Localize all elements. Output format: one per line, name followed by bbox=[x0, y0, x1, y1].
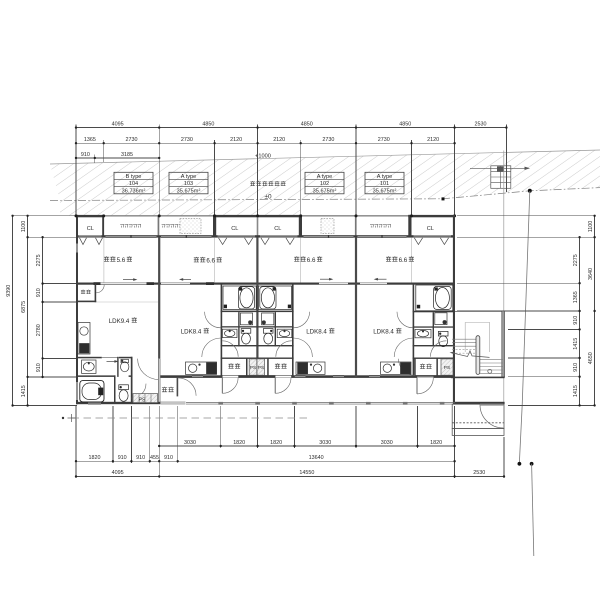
svg-text:2120: 2120 bbox=[273, 137, 285, 143]
svg-text:LDK8.4: LDK8.4 bbox=[181, 329, 202, 336]
svg-text:4095: 4095 bbox=[112, 121, 124, 127]
svg-text:2530: 2530 bbox=[473, 470, 485, 476]
svg-text:910: 910 bbox=[81, 152, 90, 158]
svg-text:±0: ±0 bbox=[264, 194, 272, 201]
svg-text:LDK8.4: LDK8.4 bbox=[306, 329, 327, 336]
svg-text:910: 910 bbox=[136, 455, 145, 461]
svg-text:104: 104 bbox=[129, 181, 138, 187]
svg-text:1415: 1415 bbox=[21, 385, 27, 397]
svg-text:1820: 1820 bbox=[270, 440, 282, 446]
svg-text:5.6: 5.6 bbox=[117, 257, 126, 264]
svg-text:4850: 4850 bbox=[301, 121, 313, 127]
svg-text:3185: 3185 bbox=[121, 152, 133, 158]
svg-text:1100: 1100 bbox=[21, 221, 27, 233]
svg-text:1365: 1365 bbox=[84, 137, 96, 143]
svg-text:6.6: 6.6 bbox=[307, 257, 316, 264]
svg-text:A type: A type bbox=[317, 174, 333, 180]
svg-text:1820: 1820 bbox=[89, 455, 101, 461]
svg-text:6.6: 6.6 bbox=[399, 257, 408, 264]
svg-text:1415: 1415 bbox=[573, 338, 579, 350]
svg-text:102: 102 bbox=[320, 181, 329, 187]
svg-text:2275: 2275 bbox=[36, 254, 42, 266]
svg-text:13640: 13640 bbox=[309, 455, 324, 461]
svg-text:B type: B type bbox=[126, 174, 142, 180]
svg-text:LDK8.4: LDK8.4 bbox=[373, 329, 394, 336]
svg-text:4095: 4095 bbox=[112, 470, 124, 476]
svg-text:3640: 3640 bbox=[588, 268, 594, 280]
svg-text:CL: CL bbox=[87, 226, 94, 232]
svg-text:36.736m²: 36.736m² bbox=[122, 188, 146, 194]
svg-text:4850: 4850 bbox=[399, 121, 411, 127]
svg-text:6875: 6875 bbox=[21, 301, 27, 313]
svg-text:1820: 1820 bbox=[233, 440, 245, 446]
svg-text:3030: 3030 bbox=[381, 440, 393, 446]
svg-text:910: 910 bbox=[573, 363, 579, 372]
svg-text:PS: PS bbox=[250, 365, 256, 371]
svg-text:2275: 2275 bbox=[573, 254, 579, 266]
svg-text:CL: CL bbox=[274, 226, 281, 232]
svg-text:1100: 1100 bbox=[588, 221, 594, 233]
svg-text:2120: 2120 bbox=[427, 137, 439, 143]
svg-text:4650: 4650 bbox=[588, 352, 594, 364]
svg-text:A type: A type bbox=[377, 174, 393, 180]
svg-text:910: 910 bbox=[164, 455, 173, 461]
svg-text:4850: 4850 bbox=[202, 121, 214, 127]
svg-text:CL: CL bbox=[427, 226, 434, 232]
svg-text:LDK9.4: LDK9.4 bbox=[109, 318, 130, 325]
svg-text:910: 910 bbox=[118, 455, 127, 461]
svg-text:CL: CL bbox=[231, 226, 238, 232]
svg-text:3030: 3030 bbox=[319, 440, 331, 446]
svg-text:2730: 2730 bbox=[378, 137, 390, 143]
svg-text:35.675m²: 35.675m² bbox=[177, 188, 201, 194]
svg-text:6.6: 6.6 bbox=[206, 257, 215, 264]
svg-text:A type: A type bbox=[181, 174, 197, 180]
svg-text:PS: PS bbox=[139, 398, 146, 404]
svg-text:2730: 2730 bbox=[181, 137, 193, 143]
svg-text:35.675m²: 35.675m² bbox=[373, 188, 397, 194]
svg-text:910: 910 bbox=[36, 363, 42, 372]
svg-text:2530: 2530 bbox=[475, 121, 487, 127]
svg-text:101: 101 bbox=[380, 181, 389, 187]
svg-text:9390: 9390 bbox=[6, 285, 12, 297]
svg-text:1415: 1415 bbox=[573, 385, 579, 397]
svg-text:103: 103 bbox=[184, 181, 193, 187]
svg-text:910: 910 bbox=[36, 288, 42, 297]
svg-text:35.675m²: 35.675m² bbox=[313, 188, 337, 194]
svg-text:3030: 3030 bbox=[184, 440, 196, 446]
svg-text:PS: PS bbox=[258, 365, 264, 371]
svg-text:1365: 1365 bbox=[573, 291, 579, 303]
svg-text:910: 910 bbox=[573, 316, 579, 325]
svg-text:PS: PS bbox=[444, 365, 450, 371]
svg-text:1820: 1820 bbox=[430, 440, 442, 446]
svg-text:2730: 2730 bbox=[126, 137, 138, 143]
svg-text:455: 455 bbox=[150, 455, 159, 461]
svg-text:2730: 2730 bbox=[322, 137, 334, 143]
svg-text:2780: 2780 bbox=[36, 324, 42, 336]
svg-text:14550: 14550 bbox=[299, 470, 314, 476]
svg-text:2120: 2120 bbox=[230, 137, 242, 143]
